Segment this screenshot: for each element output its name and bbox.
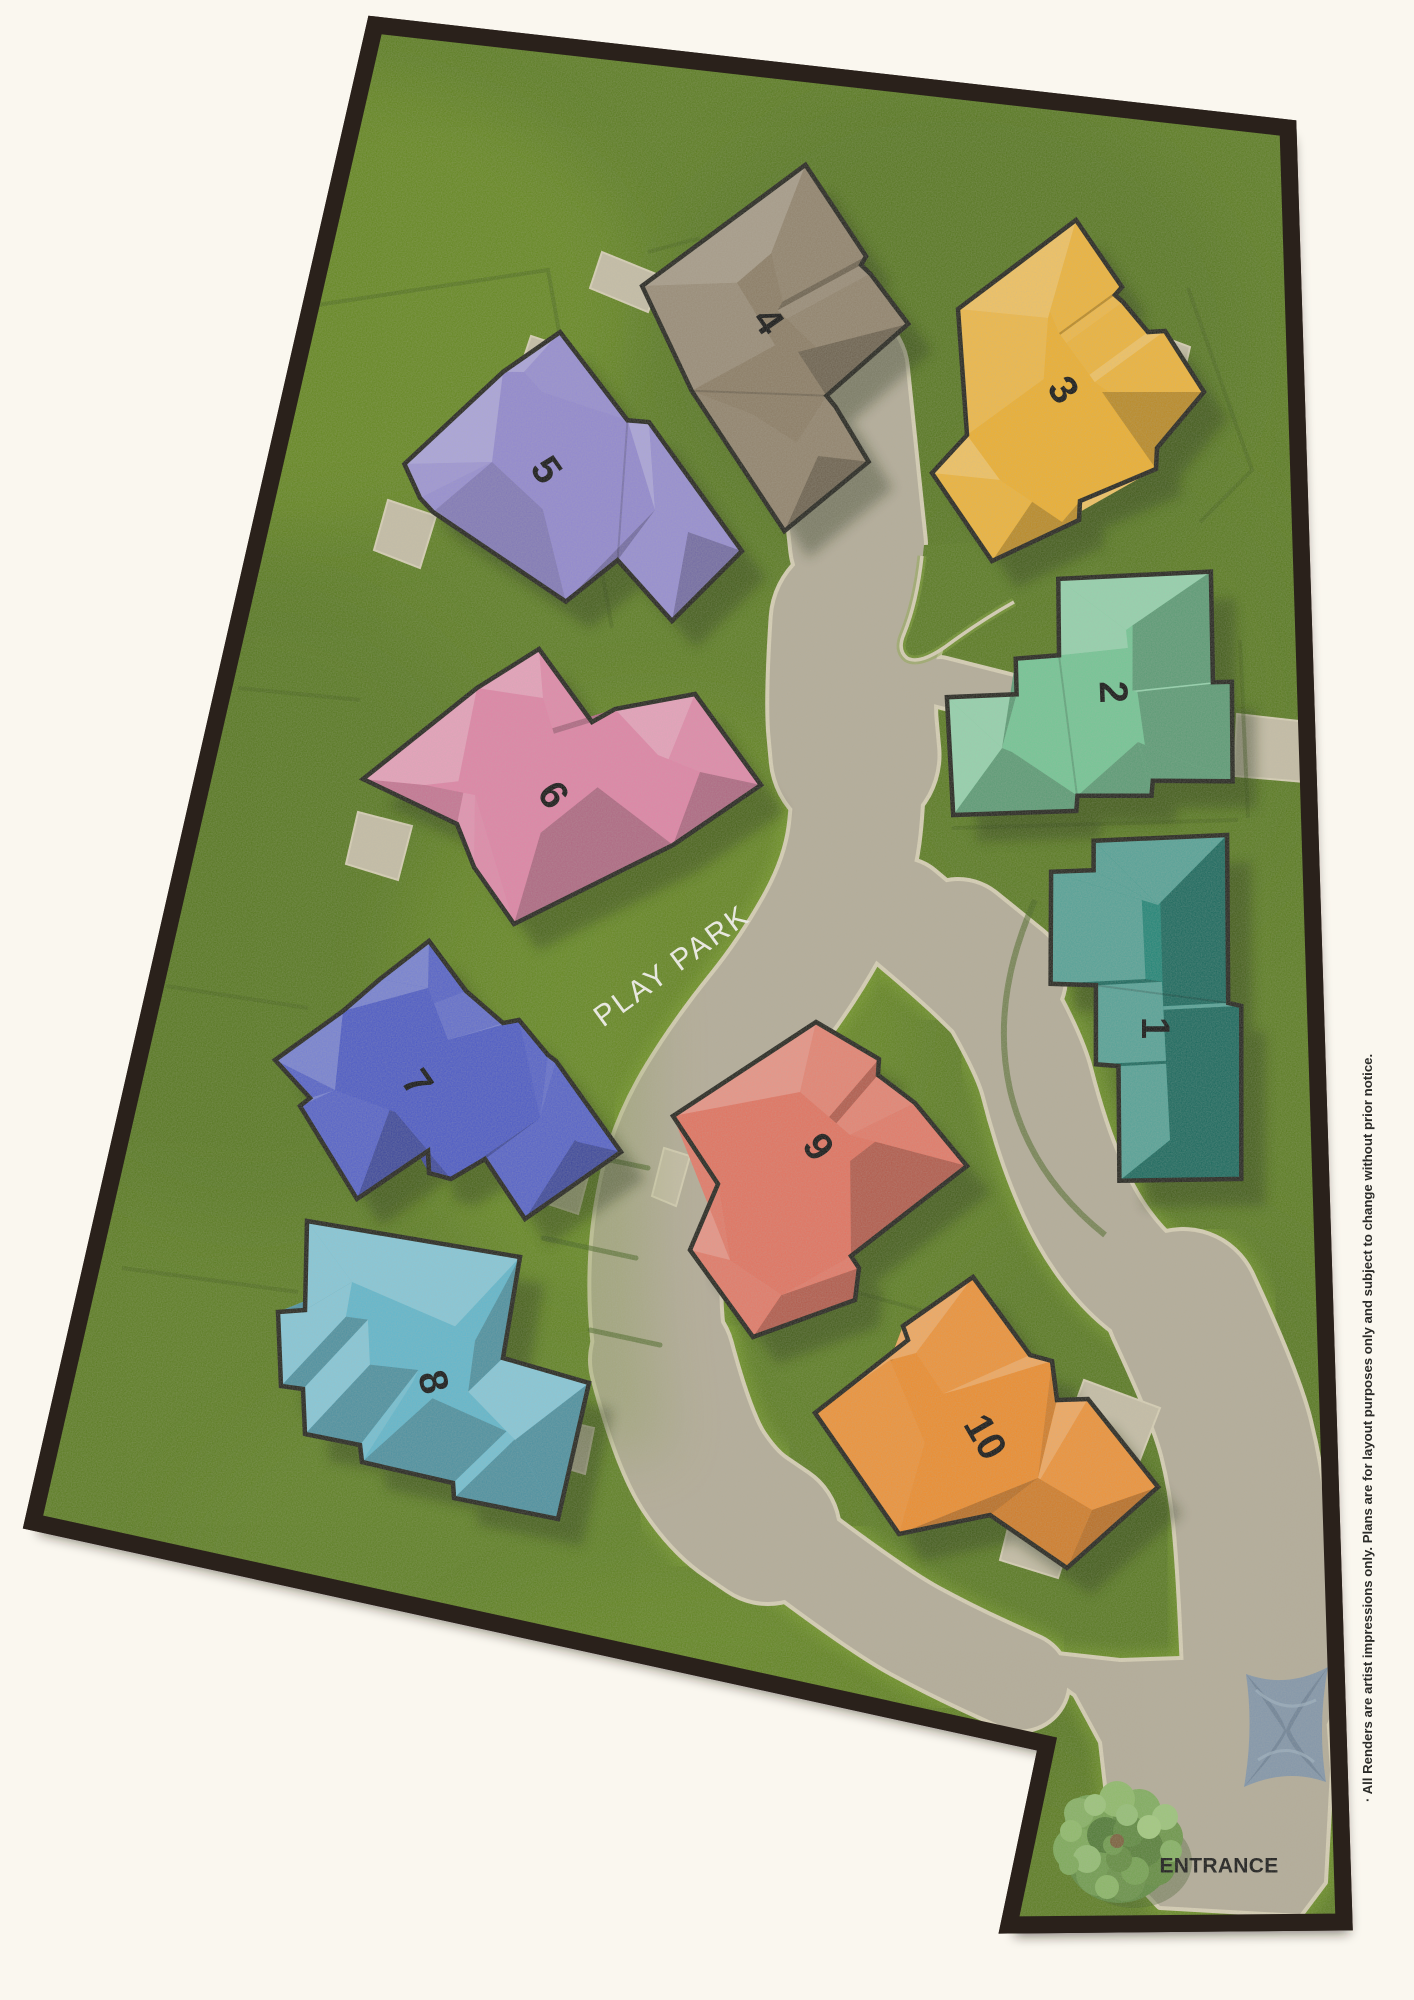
svg-text:· All Renders are artist impre: · All Renders are artist impressions onl… (1360, 1054, 1375, 1802)
